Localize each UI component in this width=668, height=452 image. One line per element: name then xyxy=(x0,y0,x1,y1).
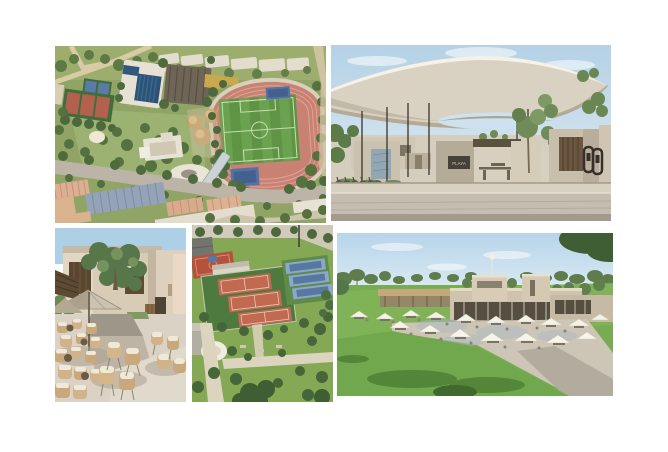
svg-text:PLAYA: PLAYA xyxy=(452,161,466,166)
